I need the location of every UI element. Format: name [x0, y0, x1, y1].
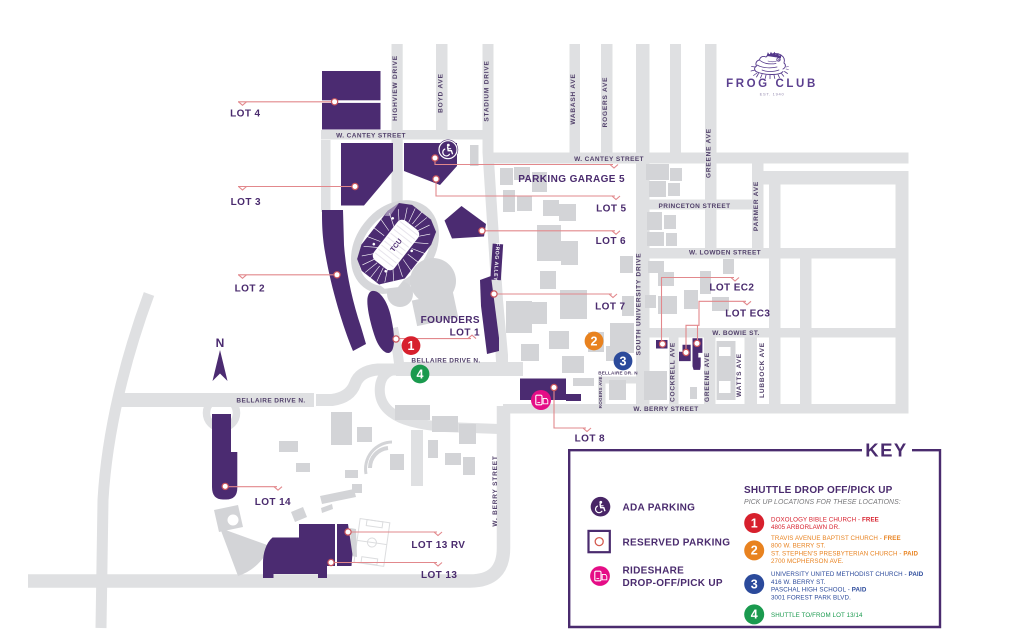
- svg-text:LOT 5: LOT 5: [596, 204, 626, 215]
- svg-text:2700 MCPHERSON AVE.: 2700 MCPHERSON AVE.: [771, 558, 844, 565]
- svg-text:1: 1: [751, 516, 758, 530]
- svg-text:LOT 13: LOT 13: [421, 570, 457, 581]
- svg-text:3: 3: [620, 354, 627, 368]
- svg-text:PARKING GARAGE 5: PARKING GARAGE 5: [518, 174, 625, 185]
- svg-text:LOT 8: LOT 8: [575, 434, 605, 445]
- svg-text:LOT 2: LOT 2: [235, 284, 265, 295]
- svg-text:LUBBOCK AVE: LUBBOCK AVE: [759, 342, 766, 398]
- svg-text:ROGERS AVE: ROGERS AVE: [602, 77, 609, 128]
- svg-text:W. CANTEY STREET: W. CANTEY STREET: [336, 133, 406, 140]
- svg-text:KEY: KEY: [865, 440, 908, 461]
- svg-text:BELLAIRE DRIVE N.: BELLAIRE DRIVE N.: [411, 358, 480, 365]
- svg-text:PARMER AVE: PARMER AVE: [753, 181, 760, 231]
- svg-text:W. BERRY STREET: W. BERRY STREET: [633, 406, 698, 413]
- svg-text:BOYD AVE: BOYD AVE: [438, 73, 445, 113]
- svg-text:SHUTTLE TO/FROM LOT 13/14: SHUTTLE TO/FROM LOT 13/14: [771, 612, 863, 619]
- svg-text:LOT 7: LOT 7: [595, 302, 625, 313]
- svg-text:COCKRELL AVE: COCKRELL AVE: [669, 342, 676, 402]
- svg-text:W. CANTEY STREET: W. CANTEY STREET: [574, 156, 644, 163]
- svg-text:SHUTTLE DROP OFF/PICK UP: SHUTTLE DROP OFF/PICK UP: [744, 485, 893, 496]
- svg-text:WABASH AVE: WABASH AVE: [570, 73, 577, 124]
- svg-text:W. BOWIE ST.: W. BOWIE ST.: [712, 330, 759, 337]
- svg-text:N: N: [216, 336, 225, 350]
- svg-text:TRAVIS AVENUE BAPTIST CHURCH -: TRAVIS AVENUE BAPTIST CHURCH - FREE: [771, 535, 901, 542]
- svg-text:PICK UP LOCATIONS FOR THESE LO: PICK UP LOCATIONS FOR THESE LOCATIONS:: [744, 499, 901, 506]
- svg-text:1: 1: [408, 339, 415, 353]
- svg-text:LOT 6: LOT 6: [596, 236, 626, 247]
- svg-text:LOT 1: LOT 1: [450, 328, 480, 339]
- svg-text:LOT 13 RV: LOT 13 RV: [411, 540, 465, 551]
- svg-text:UNIVERSITY UNITED METHODIST CH: UNIVERSITY UNITED METHODIST CHURCH - PAI…: [771, 571, 924, 578]
- svg-text:W. LOWDEN STREET: W. LOWDEN STREET: [689, 250, 761, 257]
- svg-text:LOT 14: LOT 14: [255, 497, 291, 508]
- svg-text:STADIUM DRIVE: STADIUM DRIVE: [484, 60, 491, 121]
- svg-text:DROP-OFF/PICK UP: DROP-OFF/PICK UP: [623, 578, 723, 589]
- svg-text:PASCHAL HIGH SCHOOL - PAID: PASCHAL HIGH SCHOOL - PAID: [771, 587, 867, 594]
- svg-text:RIDESHARE: RIDESHARE: [623, 566, 685, 577]
- svg-text:3001 FOREST PARK BLVD.: 3001 FOREST PARK BLVD.: [771, 594, 851, 601]
- svg-text:4: 4: [751, 608, 758, 622]
- svg-text:WATTS AVE: WATTS AVE: [736, 353, 743, 397]
- svg-text:FROG CLUB: FROG CLUB: [726, 78, 818, 90]
- svg-text:HIGHVIEW DRIVE: HIGHVIEW DRIVE: [392, 55, 399, 121]
- svg-text:4805 ARBORLAWN DR.: 4805 ARBORLAWN DR.: [771, 524, 840, 531]
- svg-text:416 W. BERRY ST.: 416 W. BERRY ST.: [771, 579, 826, 586]
- svg-text:BELLAIRE DRIVE N.: BELLAIRE DRIVE N.: [236, 398, 305, 405]
- svg-text:800 W. BERRY ST.: 800 W. BERRY ST.: [771, 543, 826, 550]
- svg-text:FOUNDERS: FOUNDERS: [421, 315, 480, 326]
- svg-text:3: 3: [751, 577, 758, 591]
- svg-text:W. BERRY STREET: W. BERRY STREET: [492, 455, 499, 526]
- svg-text:GREENE AVE: GREENE AVE: [706, 128, 713, 178]
- svg-text:BELLAIRE DR. N: BELLAIRE DR. N: [598, 371, 638, 376]
- svg-text:SOUTH UNIVERSITY DRIVE: SOUTH UNIVERSITY DRIVE: [636, 253, 643, 356]
- svg-text:RESERVED PARKING: RESERVED PARKING: [623, 538, 731, 549]
- svg-text:LOT 4: LOT 4: [230, 109, 260, 120]
- svg-text:LOT EC3: LOT EC3: [725, 309, 770, 320]
- svg-text:ROGERS AVE.: ROGERS AVE.: [598, 375, 603, 409]
- svg-text:ADA PARKING: ADA PARKING: [623, 503, 696, 514]
- svg-text:EST. 1940: EST. 1940: [760, 92, 785, 97]
- svg-text:DOXOLOGY BIBLE CHURCH - FREE: DOXOLOGY BIBLE CHURCH - FREE: [771, 517, 879, 524]
- svg-text:2: 2: [591, 334, 598, 348]
- svg-text:4: 4: [417, 367, 424, 381]
- svg-text:GREENE AVE: GREENE AVE: [704, 352, 711, 402]
- svg-text:PRINCETON STREET: PRINCETON STREET: [658, 203, 730, 210]
- svg-text:2: 2: [751, 544, 758, 558]
- svg-text:LOT EC2: LOT EC2: [709, 283, 754, 294]
- svg-text:ST. STEPHEN'S PRESBYTERIAN CHU: ST. STEPHEN'S PRESBYTERIAN CHURCH - PAID: [771, 550, 918, 557]
- svg-text:LOT 3: LOT 3: [231, 197, 261, 208]
